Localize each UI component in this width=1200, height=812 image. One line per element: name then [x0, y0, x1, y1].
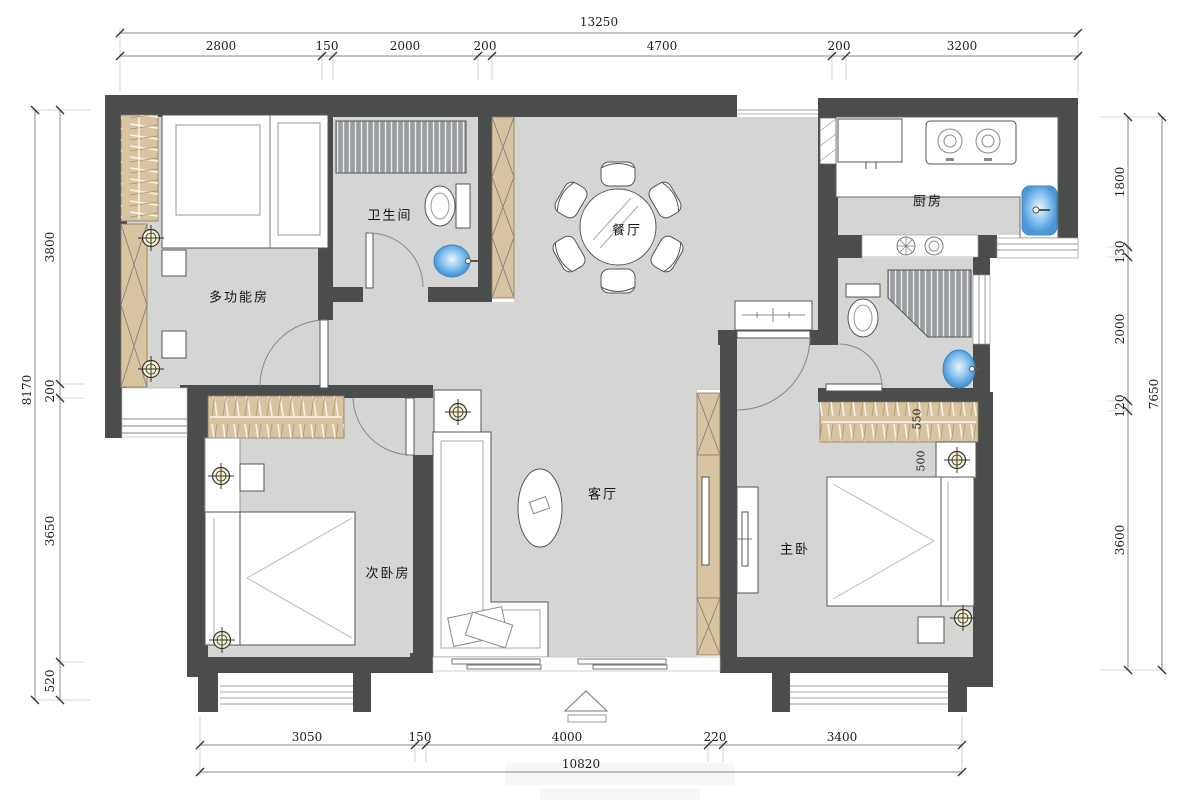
bed-master — [827, 477, 974, 606]
dim-top-total: 13250 — [580, 15, 618, 29]
tv-cabinet-master — [737, 487, 758, 593]
window-bath2 — [973, 275, 990, 344]
dim-top-seg-6: 3200 — [947, 39, 978, 53]
dim-bottom-seg-3: 220 — [704, 730, 727, 744]
dim-right-seg-2: 2000 — [1113, 314, 1127, 345]
room-label-multi: 多功能房 — [209, 287, 269, 306]
room-label-bath1: 卫生间 — [367, 205, 412, 224]
nightstand-multi-2 — [162, 331, 186, 358]
dim-bottom-seg-0: 3050 — [292, 730, 323, 744]
dim-bottom-seg-2: 4000 — [552, 730, 583, 744]
plan-graphics — [0, 0, 1200, 812]
dim-top-seg-3: 200 — [474, 39, 497, 53]
dim-top-seg-5: 200 — [828, 39, 851, 53]
window-multi-west — [122, 388, 187, 437]
kitchen-drain-strip — [862, 235, 978, 257]
wardrobe-bedroom2 — [208, 396, 344, 438]
nightstand-master — [918, 617, 944, 643]
room-label-bedroom2: 次卧房 — [365, 563, 410, 582]
room-label-living: 客厅 — [588, 484, 618, 503]
coffee-table — [518, 469, 562, 547]
shoe-cabinet — [735, 301, 812, 330]
floor-plan: 多功能房 卫生间 餐厅 厨房 次卧房 客厅 主卧 550 500 13250 2… — [0, 0, 1200, 812]
sink-icon — [943, 350, 982, 388]
dim-right-seg-3: 120 — [1113, 395, 1127, 418]
dim-left-seg-1: 200 — [43, 380, 57, 403]
bed-multi — [162, 115, 328, 248]
dim-left-seg-0: 3800 — [43, 232, 57, 263]
dim-wardrobe-550: 550 — [911, 409, 924, 430]
dim-top-seg-2: 2000 — [390, 39, 421, 53]
cabinet-dining-x — [492, 117, 514, 298]
dim-left-seg-2: 3650 — [43, 516, 57, 547]
sliding-door — [433, 657, 720, 671]
shower-bath2 — [888, 270, 971, 337]
dim-bottom-total: 10820 — [562, 757, 600, 771]
chair — [601, 162, 635, 186]
duct-shaft — [820, 118, 836, 164]
door-bath2 — [826, 344, 882, 391]
kitchen-window — [997, 238, 1078, 258]
sofa — [433, 432, 548, 657]
wardrobe-master — [820, 402, 978, 442]
window-master-south — [790, 686, 948, 704]
tv-cabinet-living — [697, 393, 720, 655]
stove-icon — [926, 121, 1016, 164]
entry-marker — [565, 691, 607, 722]
dim-right-total: 7650 — [1147, 379, 1161, 410]
ceiling-light-symbol — [950, 605, 976, 631]
window-bedroom2-south — [220, 686, 353, 704]
bed-bedroom2 — [205, 512, 355, 645]
chair — [601, 269, 635, 293]
door-master — [737, 331, 810, 410]
dim-left-seg-3: 520 — [43, 670, 57, 693]
dim-right-seg-1: 130 — [1113, 241, 1127, 264]
kitchen-sink-icon — [1022, 186, 1057, 235]
fridge — [838, 119, 902, 169]
toilet-icon — [846, 284, 880, 337]
nightstand-multi-1 — [162, 250, 186, 276]
door-multi — [260, 320, 328, 388]
shower-bath1 — [336, 121, 466, 173]
room-label-master: 主卧 — [780, 539, 810, 558]
dim-top-seg-0: 2800 — [206, 39, 237, 53]
dim-top-seg-4: 4700 — [647, 39, 678, 53]
dim-right-seg-0: 1800 — [1113, 167, 1127, 198]
nightstand-bedroom2 — [240, 464, 264, 491]
wardrobe-multi — [121, 115, 158, 221]
dim-bottom-seg-4: 3400 — [827, 730, 858, 744]
toilet-icon — [425, 184, 470, 228]
sink-icon — [434, 245, 478, 277]
door-bath1 — [366, 233, 423, 288]
dim-right-seg-4: 3600 — [1113, 525, 1127, 556]
dim-top-seg-1: 150 — [316, 39, 339, 53]
dim-bottom-seg-1: 150 — [409, 730, 432, 744]
door-bedroom2 — [353, 398, 414, 455]
room-label-kitchen: 厨房 — [913, 191, 943, 210]
dim-gap-500: 500 — [915, 451, 928, 472]
room-label-dining: 餐厅 — [612, 220, 642, 239]
cabinet-multi-x — [121, 224, 147, 387]
entry-threshold — [737, 110, 818, 114]
dim-left-total: 8170 — [20, 375, 34, 406]
